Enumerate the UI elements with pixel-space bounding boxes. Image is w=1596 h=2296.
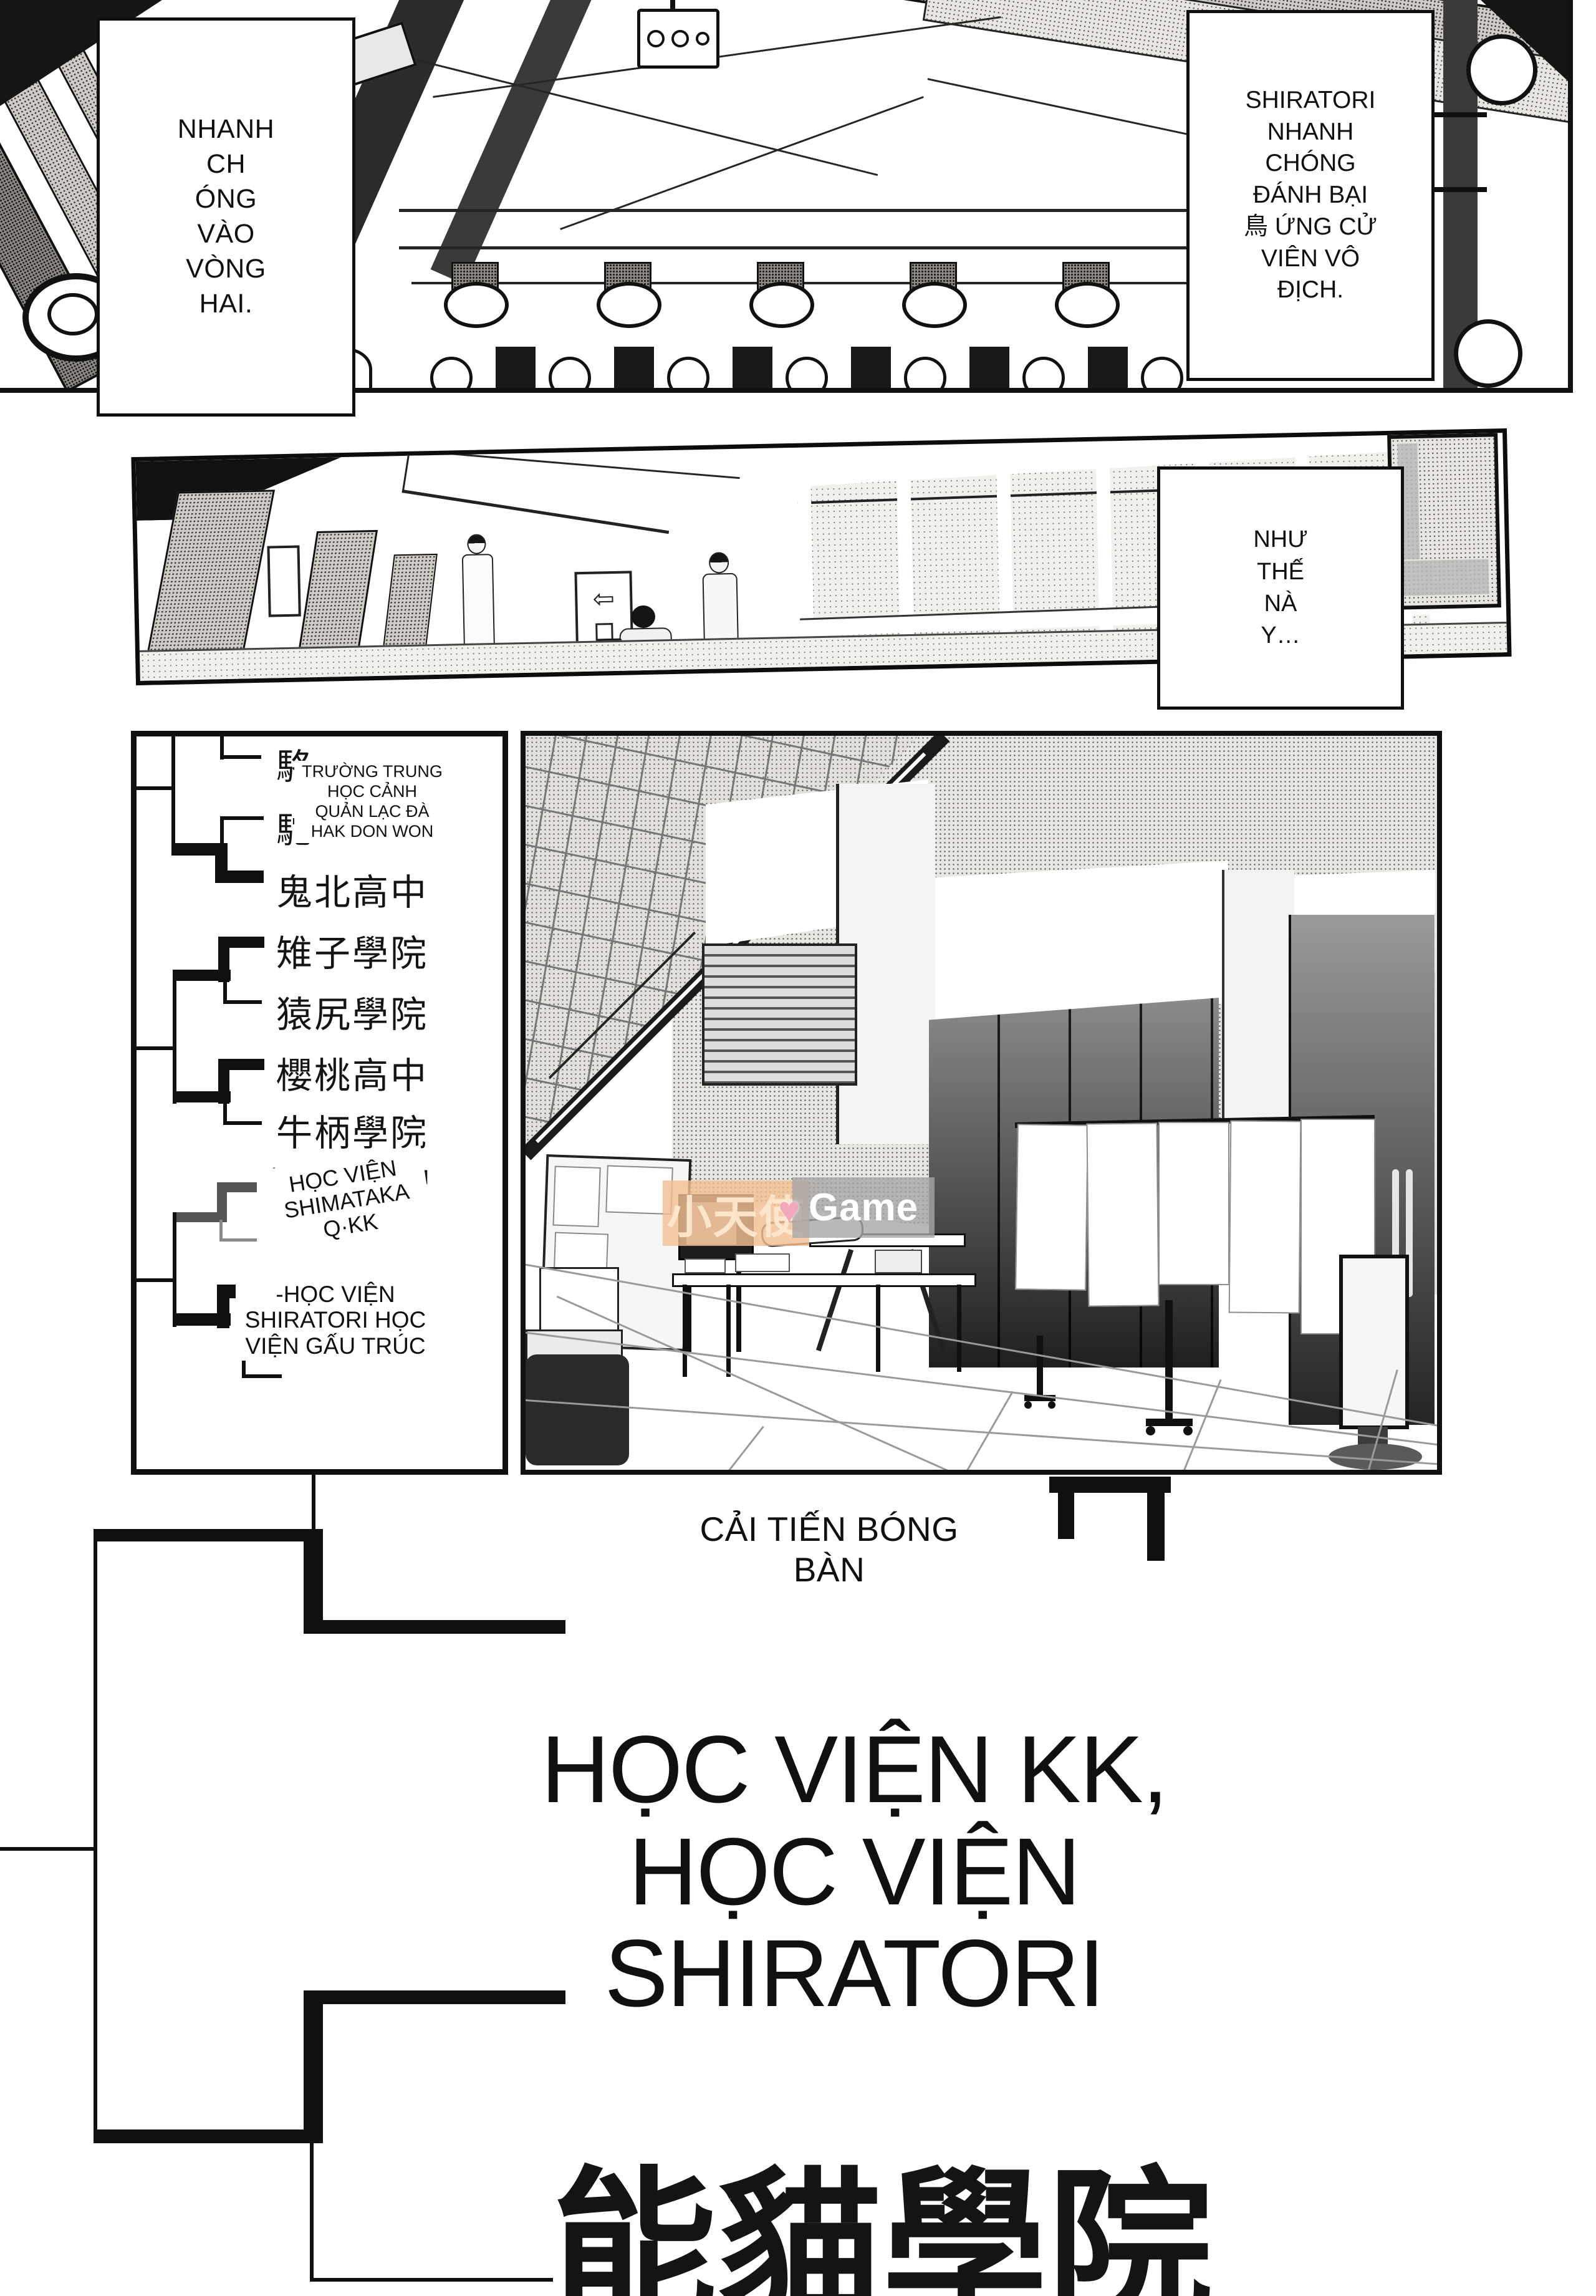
bracket-line-thick bbox=[173, 1313, 231, 1326]
bracket-line-thick bbox=[215, 871, 264, 883]
sofa-dark bbox=[526, 1354, 629, 1465]
translation-text: HỌC VIỆN SHIMATAKA Q·KK bbox=[278, 1154, 415, 1248]
translation-overlay: -HỌC VIỆN SHIRATORI HỌC VIỆN GẤU TRÚC bbox=[236, 1280, 435, 1361]
bracket-line-light bbox=[219, 1220, 223, 1241]
stand-wheel bbox=[1146, 1426, 1155, 1435]
big-bracket-line-thick bbox=[94, 2130, 323, 2143]
table-item bbox=[875, 1250, 922, 1273]
bracket-line bbox=[223, 1121, 262, 1125]
speech-text: NHANH CH ÓNG VÀO VÒNG HAI. bbox=[178, 112, 274, 321]
bracket-line bbox=[223, 981, 227, 1004]
speaker-cab bbox=[969, 347, 1009, 393]
school-name: 櫻桃高中 bbox=[276, 1046, 428, 1099]
big-bracket-line bbox=[310, 2278, 553, 2282]
net-post-mark bbox=[1147, 1477, 1165, 1561]
ceiling-soffit bbox=[402, 454, 675, 534]
bracket-line bbox=[171, 736, 175, 847]
translation-overlay: TRƯỜNG TRUNG HỌC CẢNH QUẢN LẠC ĐÀ HAK DO… bbox=[294, 761, 450, 843]
pedestal-sign bbox=[1339, 1255, 1409, 1429]
table-item bbox=[735, 1253, 790, 1272]
speaker-cone-icon bbox=[647, 30, 665, 47]
speaker-cone-icon bbox=[696, 32, 709, 46]
table-leg bbox=[683, 1285, 687, 1377]
bracket-line bbox=[312, 1475, 315, 1531]
bracket-line bbox=[223, 1000, 262, 1004]
can-light bbox=[1454, 319, 1522, 388]
right-door-frame bbox=[1387, 433, 1501, 610]
big-bracket-line bbox=[0, 1847, 94, 1851]
bracket-line bbox=[220, 755, 261, 759]
can-light bbox=[1022, 357, 1065, 393]
translation-text: -HỌC VIỆN SHIRATORI HỌC VIỆN GẤU TRÚC bbox=[245, 1281, 426, 1359]
person-head bbox=[709, 552, 729, 574]
stand-wheel bbox=[1048, 1401, 1055, 1409]
manga-page: NHANH CH ÓNG VÀO VÒNG HAI. SHIRATORI NHA… bbox=[0, 0, 1596, 2296]
table-leg bbox=[957, 1285, 961, 1372]
bracket-line bbox=[173, 970, 176, 1104]
big-bracket-line-thick bbox=[304, 1990, 565, 2004]
chapter-title: HỌC VIỆN KK, HỌC VIỆN SHIRATORI bbox=[536, 1719, 1172, 2025]
net-post-mark bbox=[1058, 1477, 1074, 1539]
can-light bbox=[667, 357, 709, 393]
floor-line bbox=[663, 1426, 764, 1475]
stand-post bbox=[1037, 1336, 1043, 1395]
picture-frame bbox=[267, 546, 300, 617]
cart-leg bbox=[736, 1258, 741, 1352]
school-name: 雉子學院 bbox=[276, 924, 428, 977]
bottom-academy-title: 能貓學院 bbox=[552, 2114, 1213, 2296]
panel-gym-interior: 小天使 Game ♥ bbox=[521, 731, 1442, 1475]
person-head bbox=[632, 605, 656, 629]
can-light bbox=[902, 282, 967, 328]
board-stand bbox=[1146, 1300, 1193, 1437]
results-board bbox=[1015, 1119, 1375, 1336]
watermark-heart-icon: ♥ bbox=[778, 1189, 800, 1232]
school-name: 鬼北高中 bbox=[276, 863, 428, 915]
speech-text: NHƯ THẾ NÀ Y… bbox=[1253, 524, 1307, 652]
board-sheet bbox=[1158, 1122, 1229, 1285]
board-sheet bbox=[1086, 1122, 1159, 1306]
door-shade-horizontal bbox=[1400, 559, 1489, 596]
person-head bbox=[467, 534, 486, 554]
bracket-line-light bbox=[219, 1238, 257, 1242]
bracket-line bbox=[133, 786, 171, 790]
bracket-line-thick bbox=[173, 1091, 231, 1102]
panel-caption: CẢI TIẾN BÓNG BÀN bbox=[577, 1509, 1082, 1590]
person-standing bbox=[461, 534, 495, 650]
bracket-line bbox=[134, 1046, 176, 1050]
big-bracket-line bbox=[310, 2143, 314, 2282]
speaker-cone-icon bbox=[671, 30, 689, 47]
person-body bbox=[462, 554, 495, 650]
speaker-cab bbox=[496, 347, 536, 393]
speech-box-hallway: NHƯ THẾ NÀ Y… bbox=[1157, 466, 1404, 710]
speech-box-right: SHIRATORI NHANH CHÓNG ĐÁNH BẠI 鳥 ỨNG CỬ … bbox=[1186, 10, 1435, 381]
stand-wheel bbox=[1024, 1401, 1032, 1409]
translation-text: TRƯỜNG TRUNG HỌC CẢNH QUẢN LẠC ĐÀ HAK DO… bbox=[302, 762, 443, 841]
pipe-bracket bbox=[1428, 112, 1487, 117]
speaker-cab bbox=[1088, 347, 1128, 393]
stage-light-inner bbox=[47, 293, 99, 335]
table-leg bbox=[876, 1285, 880, 1372]
can-light bbox=[749, 282, 814, 328]
can-light bbox=[1466, 34, 1537, 105]
watermark-latin-text: Game bbox=[809, 1185, 918, 1230]
watermark: 小天使 Game ♥ bbox=[663, 1177, 937, 1247]
board-sheet bbox=[1015, 1124, 1089, 1291]
long-table bbox=[672, 1273, 976, 1287]
can-light bbox=[430, 357, 473, 393]
big-bracket-line-thick bbox=[304, 1620, 565, 1634]
stand-wheel bbox=[1183, 1426, 1193, 1435]
board-sheet bbox=[1229, 1121, 1302, 1314]
can-light bbox=[1141, 357, 1183, 393]
can-light bbox=[786, 357, 828, 393]
can-light bbox=[444, 282, 509, 328]
roof-beam bbox=[431, 0, 617, 284]
ceiling-line bbox=[342, 444, 740, 480]
can-light bbox=[597, 282, 661, 328]
watermark-latin-block: Game bbox=[792, 1177, 935, 1238]
pipe-bracket bbox=[1428, 187, 1487, 192]
pinned-paper bbox=[552, 1166, 600, 1228]
stand-foot bbox=[1146, 1419, 1193, 1426]
speaker-cab bbox=[851, 347, 891, 393]
bracket-line bbox=[173, 1212, 176, 1327]
can-light bbox=[1055, 282, 1120, 328]
speaker-box bbox=[637, 9, 719, 69]
table-leg bbox=[726, 1285, 731, 1377]
arrow-left-icon: ⇦ bbox=[592, 586, 615, 612]
table-item bbox=[685, 1258, 726, 1273]
bracket-line bbox=[242, 1374, 282, 1378]
bracket-line bbox=[134, 1278, 176, 1282]
bracket-line-gray bbox=[173, 1212, 227, 1222]
stand-post bbox=[1165, 1300, 1173, 1419]
bracket-line-thick bbox=[173, 970, 231, 981]
can-light bbox=[549, 357, 591, 393]
wall-banner bbox=[890, 861, 1228, 1023]
speech-box-left: NHANH CH ÓNG VÀO VÒNG HAI. bbox=[97, 17, 355, 417]
big-bracket-line-thick bbox=[94, 1529, 323, 1541]
big-bracket-line bbox=[94, 1529, 97, 2143]
speaker-cab bbox=[733, 347, 772, 393]
roller-shutter bbox=[702, 943, 857, 1086]
big-bracket-line-thick bbox=[304, 1990, 323, 2143]
can-light bbox=[904, 357, 946, 393]
speaker-cab bbox=[614, 347, 654, 393]
bracket-line bbox=[220, 816, 264, 820]
desk-xleg bbox=[816, 1249, 853, 1351]
speech-text: SHIRATORI NHANH CHÓNG ĐÁNH BẠI 鳥 ỨNG CỬ … bbox=[1244, 85, 1377, 306]
big-bracket-line-thick bbox=[304, 1529, 323, 1633]
school-name: 猿尻學院 bbox=[276, 985, 428, 1038]
